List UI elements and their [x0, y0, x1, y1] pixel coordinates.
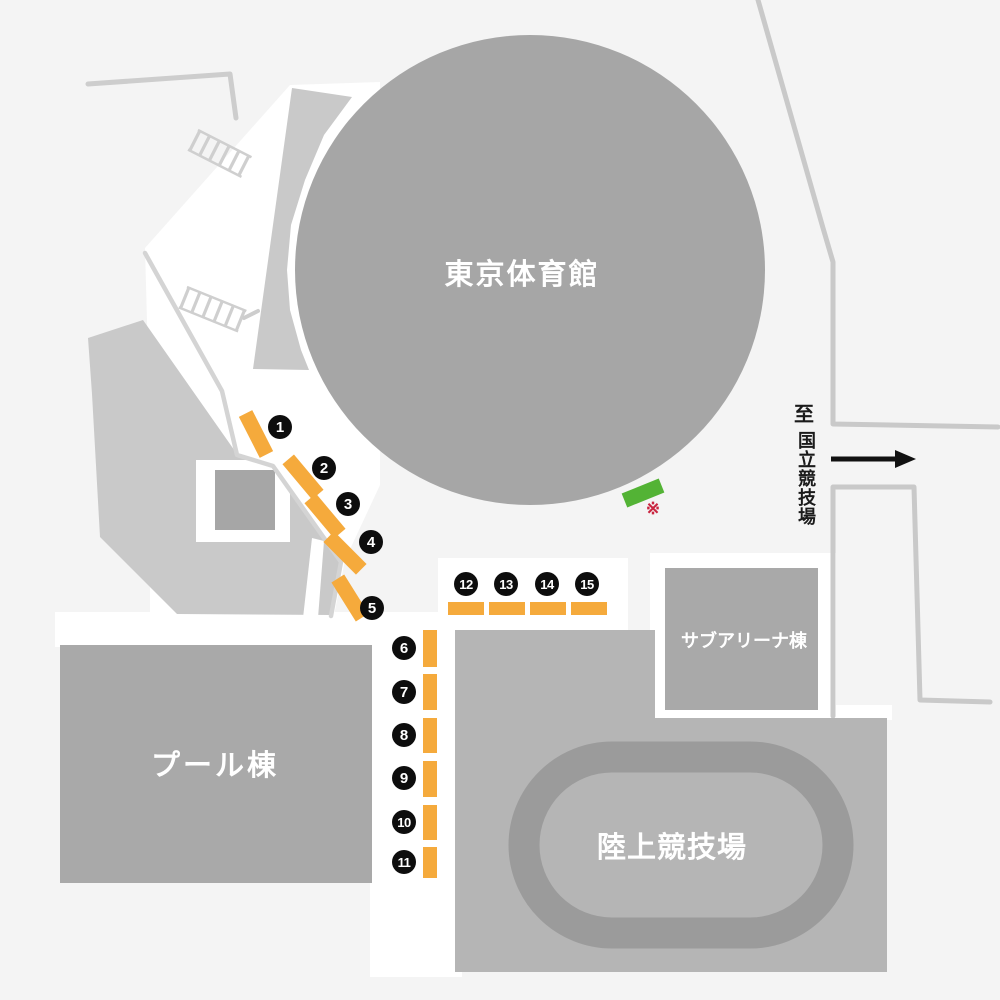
- gate-badge-8: 8: [392, 723, 416, 747]
- gate-badge-13: 13: [494, 572, 518, 596]
- gate-marker-12: [448, 602, 484, 615]
- gate-marker-7: [423, 674, 437, 710]
- gate-badge-9: 9: [392, 766, 416, 790]
- gate-badge-5: 5: [360, 596, 384, 620]
- direction-prefix: 至: [794, 398, 814, 427]
- gate-badge-14: 14: [535, 572, 559, 596]
- site-map: 東京体育館 プール棟 サブアリーナ棟 陸上競技場 至 国立競技場 ※ 1 2 3…: [0, 0, 1000, 1000]
- gate-badge-11: 11: [392, 850, 416, 874]
- path-east-upper: [758, 0, 998, 427]
- gate-badge-4: 4: [359, 530, 383, 554]
- small-building: [215, 470, 275, 530]
- gate-marker-10: [423, 805, 437, 840]
- gate-marker-13: [489, 602, 525, 615]
- direction-destination: 国立競技場: [793, 431, 819, 541]
- athletics-field-label: 陸上競技場: [512, 832, 832, 865]
- note-symbol: ※: [641, 499, 665, 519]
- walkway-channel: [370, 612, 462, 977]
- gate-badge-15: 15: [575, 572, 599, 596]
- path-east-lower: [833, 487, 990, 716]
- gate-marker-8: [423, 718, 437, 753]
- direction-arrow-icon: [831, 450, 916, 468]
- gate-badge-7: 7: [392, 680, 416, 704]
- pool-label: プール棟: [55, 750, 375, 783]
- gate-marker-11: [423, 847, 437, 878]
- gymnasium-label: 東京体育館: [362, 259, 682, 292]
- path-north: [88, 74, 236, 118]
- gate-badge-1: 1: [268, 415, 292, 439]
- sub-arena-label: サブアリーナ棟: [644, 631, 844, 652]
- gate-marker-9: [423, 761, 437, 797]
- site-map-canvas: [0, 0, 1000, 1000]
- gate-marker-14: [530, 602, 566, 615]
- gate-badge-10: 10: [392, 810, 416, 834]
- gate-badge-3: 3: [336, 492, 360, 516]
- gate-marker-15: [571, 602, 607, 615]
- gate-badge-6: 6: [392, 636, 416, 660]
- gate-badge-12: 12: [454, 572, 478, 596]
- gate-marker-6: [423, 630, 437, 667]
- gate-badge-2: 2: [312, 456, 336, 480]
